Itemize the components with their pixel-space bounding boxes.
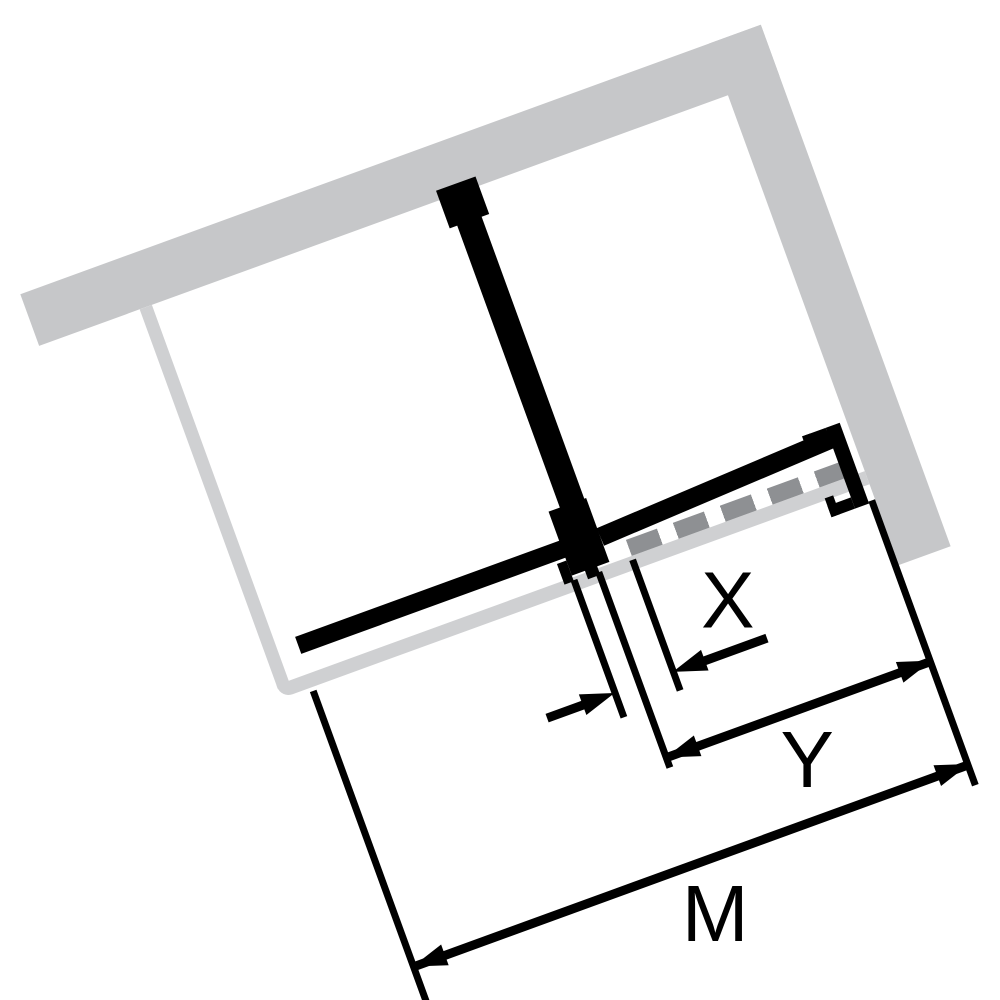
- dim-m-left-arrow: [409, 945, 448, 977]
- dim-m-label: M: [682, 874, 749, 954]
- dim-m-right-arrow: [934, 754, 973, 786]
- tray-left-edge: [140, 305, 290, 689]
- extension-line-panel-end: [310, 690, 431, 1000]
- dim-y-right-arrow: [896, 650, 935, 682]
- wall-top: [20, 25, 779, 346]
- dim-y-left-arrow: [662, 735, 701, 767]
- dim-y-label: Y: [780, 720, 833, 800]
- dim-x-left-arrow: [579, 683, 618, 715]
- dim-x-label: X: [701, 561, 754, 641]
- diagram-canvas: X Y M: [0, 0, 1000, 1000]
